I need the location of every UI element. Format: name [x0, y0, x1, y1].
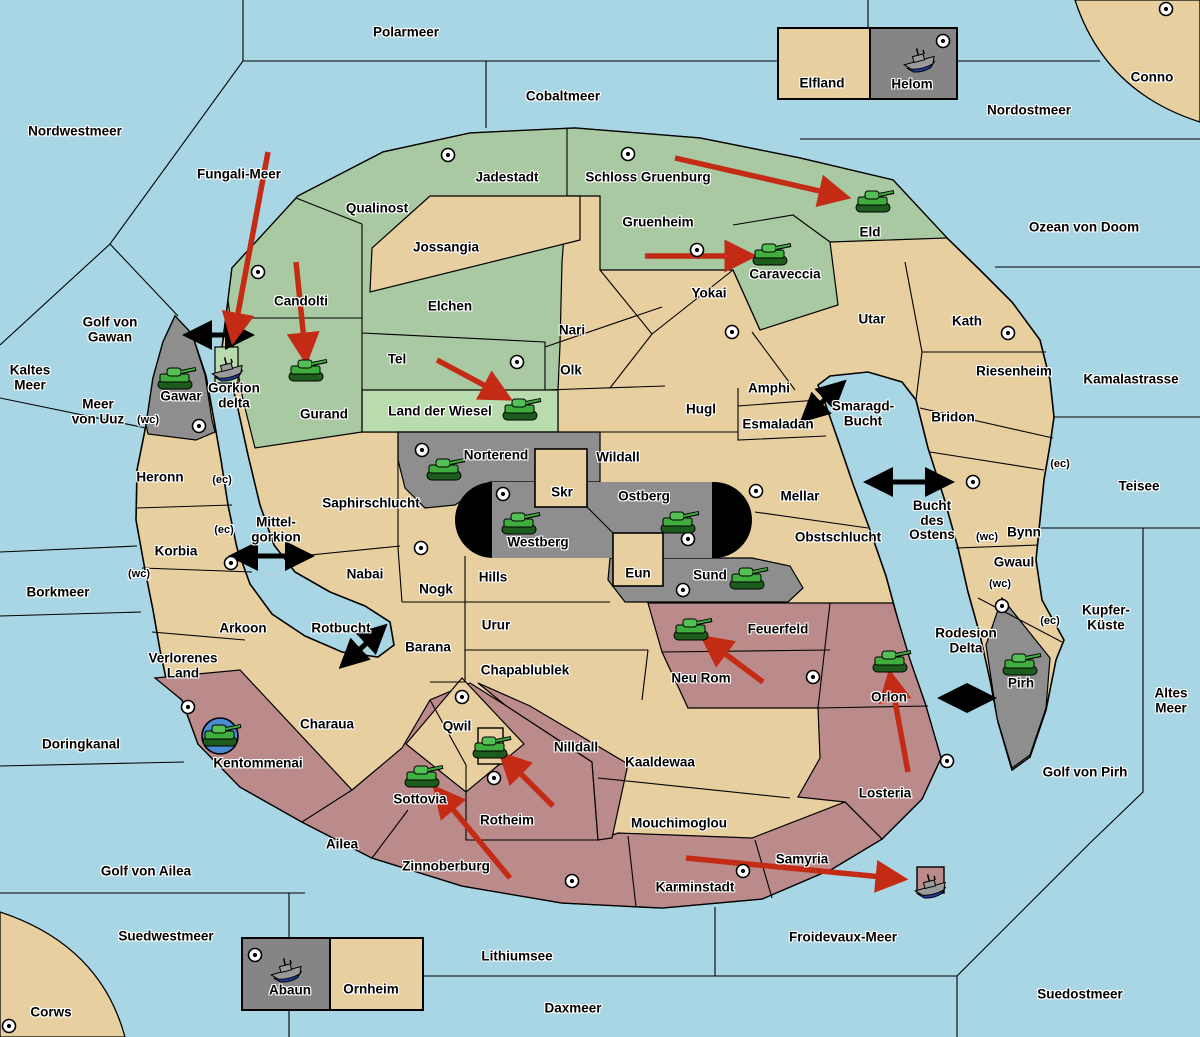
map-canvas [0, 0, 1200, 1037]
city-marker [456, 691, 469, 704]
territory-label[interactable]: Sund [693, 569, 727, 584]
territory-label[interactable]: Caraveccia [749, 268, 820, 283]
territory-label[interactable]: Jadestadt [475, 171, 538, 186]
territory-label[interactable]: Neu Rom [671, 672, 730, 687]
territory-label[interactable]: Helom [891, 78, 932, 93]
territory-label[interactable]: Ailea [326, 838, 358, 853]
territory-label[interactable]: Eun [625, 567, 651, 582]
coast-type-label: (ec) [212, 475, 232, 487]
territory-label[interactable]: Karminstadt [656, 881, 735, 896]
territory-label[interactable]: Elchen [428, 300, 472, 315]
territory-label[interactable]: Olk [560, 364, 582, 379]
territory-label[interactable]: Riesenheim [976, 365, 1052, 380]
territory-label[interactable]: Hugl [686, 403, 716, 418]
city-marker [622, 148, 635, 161]
sea-label[interactable]: Smaragd- Bucht [832, 399, 894, 428]
territory-label[interactable]: Verlorenes Land [148, 651, 217, 680]
city-marker [225, 557, 238, 570]
territory-label[interactable]: Land der Wiesel [388, 405, 491, 420]
territory-label[interactable]: Qwil [443, 720, 472, 735]
city-marker [488, 772, 501, 785]
game-map: PolarmeerCobaltmeerNordostmeerNordwestme… [0, 0, 1200, 1037]
city-marker [3, 1020, 16, 1033]
territory-label[interactable]: Eld [859, 226, 880, 241]
sea-label[interactable]: Suedwestmeer [118, 930, 213, 945]
city-marker [941, 755, 954, 768]
territory-label[interactable]: Bridon [931, 411, 975, 426]
territory-label[interactable]: Ostberg [618, 490, 670, 505]
coast-type-label: (wc) [137, 415, 159, 427]
city-marker [182, 701, 195, 714]
sea-label[interactable]: Froidevaux-Meer [789, 931, 897, 946]
sea-label[interactable]: Nordostmeer [987, 104, 1071, 119]
territory-label[interactable]: Nabai [347, 568, 384, 583]
city-marker [193, 420, 206, 433]
city-marker [807, 671, 820, 684]
territory-label[interactable]: Losteria [859, 787, 912, 802]
sea-label[interactable]: Rotbucht [311, 622, 370, 637]
city-marker [726, 326, 739, 339]
territory-label[interactable]: Chapablublek [481, 664, 570, 679]
territory-label[interactable]: Tel [388, 353, 407, 368]
territory-label[interactable]: Rotheim [480, 814, 534, 829]
territory-label[interactable]: Gawar [160, 390, 201, 405]
sea-label[interactable]: Kupfer- Küste [1082, 603, 1130, 632]
coast-type-label: (wc) [128, 569, 150, 581]
territory-label[interactable]: Samyria [776, 853, 829, 868]
territory-label[interactable]: Corws [30, 1006, 71, 1021]
city-marker [677, 584, 690, 597]
territory-label[interactable]: Esmaladan [742, 418, 813, 433]
territory-label[interactable]: Schloss Gruenburg [585, 171, 710, 186]
sea-label[interactable]: Rodesion Delta [935, 626, 997, 655]
city-marker [682, 533, 695, 546]
sea-label[interactable]: Borkmeer [26, 586, 89, 601]
city-marker [1002, 327, 1015, 340]
territory-label[interactable]: Orlon [871, 691, 907, 706]
city-marker [416, 444, 429, 457]
territory-label[interactable]: Korbia [155, 545, 198, 560]
sea-label[interactable]: Golf von Gawan [83, 315, 138, 344]
coast-type-label: (wc) [989, 579, 1011, 591]
territory-label[interactable]: Elfland [799, 77, 844, 92]
coast-type-label: (ec) [1040, 616, 1060, 628]
territory-label[interactable]: Kath [952, 315, 982, 330]
territory-label[interactable]: Amphi [748, 382, 790, 397]
territory-label[interactable]: Nilldall [554, 741, 598, 756]
territory-label[interactable]: Mouchimoglou [631, 817, 727, 832]
territory-label[interactable]: Nogk [419, 583, 453, 598]
territory-label[interactable]: Bynn [1007, 526, 1041, 541]
territory-label[interactable]: Wildall [596, 451, 639, 466]
territory-label[interactable]: Skr [551, 486, 573, 501]
sea-label[interactable]: Kamalastrasse [1083, 373, 1178, 388]
coast-type-label: (wc) [976, 532, 998, 544]
sea-label[interactable]: Doringkanal [42, 738, 120, 753]
territory-label[interactable]: Kaaldewaa [625, 756, 695, 771]
city-marker [415, 542, 428, 555]
territory-label[interactable]: Nari [559, 324, 585, 339]
sea-label[interactable]: Golf von Ailea [101, 865, 191, 880]
sea-label[interactable]: Mittel- gorkion [251, 515, 301, 544]
territory-label[interactable]: Saphirschlucht [322, 497, 420, 512]
territory-label[interactable]: Charaua [300, 718, 354, 733]
city-marker [566, 875, 579, 888]
city-marker [967, 476, 980, 489]
city-marker [691, 244, 704, 257]
territory-label[interactable]: Conno [1131, 71, 1174, 86]
sea-label[interactable]: Suedostmeer [1037, 988, 1123, 1003]
territory-label[interactable]: Urur [482, 619, 511, 634]
city-marker [442, 149, 455, 162]
territory-label[interactable]: Yokai [691, 287, 726, 302]
territory-label[interactable]: Kentommenai [213, 757, 302, 772]
region-ornheim[interactable] [330, 938, 423, 1010]
city-marker [511, 356, 524, 369]
territory-label[interactable]: Sottovia [393, 793, 446, 808]
sea-label[interactable]: Golf von Pirh [1043, 766, 1128, 781]
territory-label[interactable]: Abaun [269, 984, 311, 999]
city-marker [750, 485, 763, 498]
territory-label[interactable]: Gwaul [994, 556, 1035, 571]
sea-label[interactable]: Teisee [1118, 480, 1159, 495]
territory-label[interactable]: Gorkion delta [208, 381, 260, 410]
city-marker [497, 488, 510, 501]
city-marker [737, 865, 750, 878]
city-marker [1160, 3, 1173, 16]
sea-label[interactable]: Lithiumsee [481, 950, 552, 965]
sea-label[interactable]: Altes Meer [1154, 686, 1187, 715]
territory-label[interactable]: Feuerfeld [748, 623, 809, 638]
sea-label[interactable]: Daxmeer [544, 1002, 601, 1017]
coast-type-label: (ec) [1050, 459, 1070, 471]
sea-label[interactable]: Cobaltmeer [526, 90, 600, 105]
territory-label[interactable]: Mellar [780, 490, 819, 505]
territory-label[interactable]: Norterend [464, 449, 529, 464]
territory-label[interactable]: Heronn [136, 471, 183, 486]
territory-label[interactable]: Utar [858, 313, 885, 328]
territory-label[interactable]: Candolti [274, 295, 328, 310]
territory-label[interactable]: Gruenheim [622, 216, 693, 231]
territory-label[interactable]: Hills [479, 571, 508, 586]
territory-label[interactable]: Westberg [507, 536, 568, 551]
sea-label[interactable]: Bucht des Ostens [909, 499, 955, 543]
city-marker [252, 266, 265, 279]
territory-label[interactable]: Qualinost [346, 202, 408, 217]
sea-label[interactable]: Meer von Uuz [72, 397, 125, 426]
city-marker [249, 949, 262, 962]
territory-label[interactable]: Pirh [1008, 677, 1034, 692]
sea-label[interactable]: Polarmeer [373, 26, 439, 41]
territory-label[interactable]: Gurand [300, 408, 348, 423]
territory-label[interactable]: Jossangia [413, 241, 479, 256]
coast-type-label: (ec) [214, 525, 234, 537]
sea-label[interactable]: Fungali-Meer [197, 168, 281, 183]
city-marker [996, 600, 1009, 613]
territory-label[interactable]: Barana [405, 641, 451, 656]
territory-label[interactable]: Ornheim [343, 983, 399, 998]
sea-label[interactable]: Nordwestmeer [28, 125, 122, 140]
territory-label[interactable]: Zinnoberburg [402, 860, 490, 875]
sea-label[interactable]: Kaltes Meer [10, 363, 51, 392]
city-marker [937, 35, 950, 48]
sea-label[interactable]: Ozean von Doom [1029, 221, 1139, 236]
territory-label[interactable]: Obstschlucht [795, 531, 881, 546]
territory-label[interactable]: Arkoon [219, 622, 266, 637]
